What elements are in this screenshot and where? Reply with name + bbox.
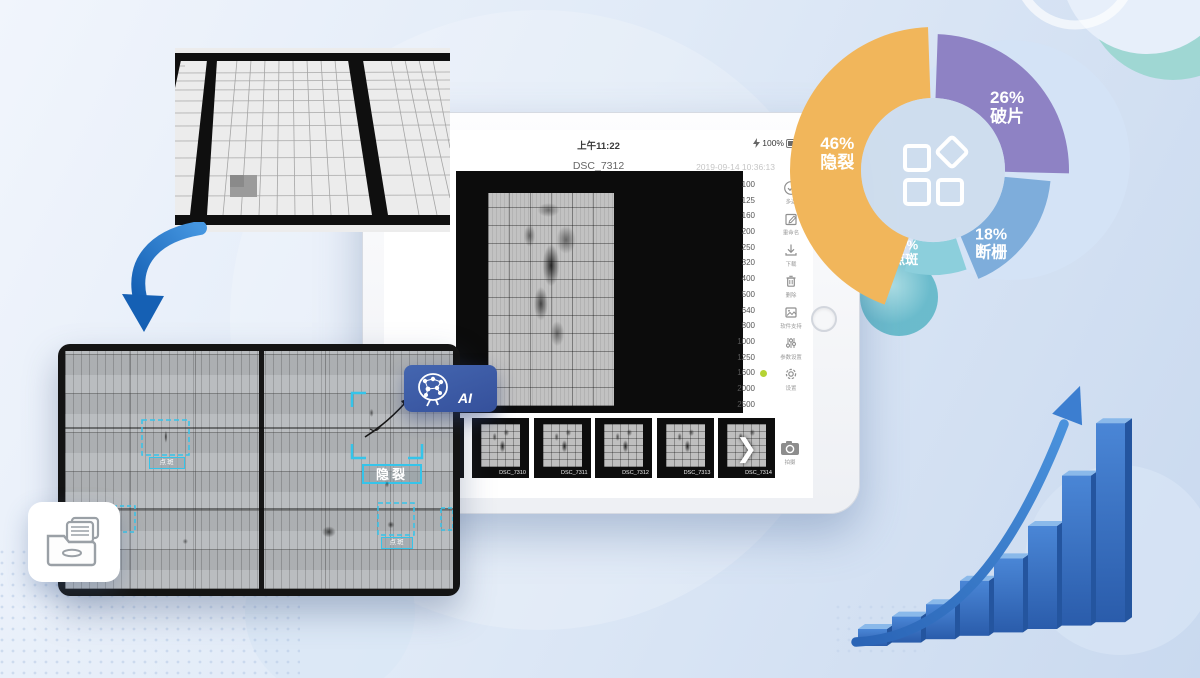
el-module-image: 隐裂 点斑 点斑	[65, 351, 453, 589]
thumbnail-dsc_7314[interactable]: DSC_7314❯	[718, 418, 775, 478]
pie-label-隐裂: 46%隐裂	[820, 134, 854, 172]
iso-value-640[interactable]: 640	[727, 303, 755, 319]
camera-button[interactable]: 拍摄	[772, 440, 808, 466]
growth-bar-6	[1028, 526, 1057, 629]
thumbnail-dsc_7311[interactable]: DSC_7311	[534, 418, 591, 478]
iso-value-125[interactable]: 125	[727, 193, 755, 209]
iso-value-800[interactable]: 800	[727, 318, 755, 334]
iso-value-500[interactable]: 500	[727, 287, 755, 303]
pie-label-断栅: 18%断栅	[975, 227, 1007, 262]
iso-scale: 1001251602002503204005006408001000125016…	[727, 177, 755, 412]
growth-arrow-head	[1052, 380, 1095, 425]
promo-canvas: 4G 上午11:22 100% DSC_7312 2019-09-14 10	[0, 0, 1200, 678]
thumbnail-dsc_7313[interactable]: DSC_7313	[657, 418, 714, 478]
more-thumbnails-chevron-icon[interactable]: ❯	[718, 418, 775, 478]
tool-parameter-settings[interactable]: 参数设置	[770, 335, 812, 366]
iso-value-320[interactable]: 320	[727, 255, 755, 271]
tool-settings[interactable]: 设置	[770, 366, 812, 397]
filmstrip: DSC_7310DSC_7311DSC_7312DSC_7313DSC_7314…	[472, 418, 775, 478]
iso-value-200[interactable]: 200	[727, 224, 755, 240]
growth-bar-7	[1062, 476, 1091, 626]
thumbnail-dsc_7310[interactable]: DSC_7310	[472, 418, 529, 478]
defect-overlays	[65, 351, 453, 589]
pie-label-破片: 26%破片	[990, 88, 1024, 126]
iso-value-400[interactable]: 400	[727, 271, 755, 287]
growth-bar-8	[1096, 423, 1125, 622]
thumbnail-dsc_7312[interactable]: DSC_7312	[595, 418, 652, 478]
iso-value-1600[interactable]: 1600	[727, 365, 755, 381]
folder-import-icon	[42, 514, 106, 570]
ai-badge-label: AI	[458, 390, 472, 406]
iso-value-100[interactable]: 100	[727, 177, 755, 193]
defect-label-spot-1: 点斑	[149, 457, 185, 469]
el-photo	[488, 193, 614, 406]
thumbnail-label: DSC_7311	[561, 470, 588, 476]
defect-pie-chart: 26%破片18%断栅10%点斑46%隐裂	[770, 8, 1110, 320]
solar-array-illustration	[175, 48, 450, 232]
defect-label-spot-2: 点斑	[381, 537, 413, 549]
thumbnail-label: DSC_7310	[499, 470, 526, 476]
gear-icon	[783, 366, 799, 382]
growth-bar-chart	[838, 375, 1150, 667]
iso-value-1250[interactable]: 1250	[727, 350, 755, 366]
ai-badge: AI	[404, 365, 497, 412]
iso-value-2000[interactable]: 2000	[727, 381, 755, 397]
donut-hole	[861, 98, 1005, 242]
gallery-folder-card[interactable]	[28, 502, 120, 582]
module-divider	[259, 351, 264, 589]
growth-bar-8	[1125, 418, 1132, 622]
iso-value-2500[interactable]: 2500	[727, 397, 755, 413]
camera-icon	[780, 440, 800, 456]
sliders-icon	[783, 335, 799, 351]
charging-bolt-icon	[753, 138, 760, 148]
aerial-solar-photo	[175, 48, 450, 232]
thumbnail-label: DSC_7313	[684, 470, 711, 476]
ai-brain-icon	[412, 370, 456, 408]
el-image-viewer[interactable]	[456, 171, 743, 413]
curved-down-arrow	[118, 222, 228, 337]
iso-value-1000[interactable]: 1000	[727, 334, 755, 350]
iso-selected-dot	[760, 370, 767, 377]
iso-value-250[interactable]: 250	[727, 240, 755, 256]
defect-label-crack: 隐裂	[362, 464, 422, 484]
growth-bar-5	[994, 558, 1023, 632]
iso-value-160[interactable]: 160	[727, 208, 755, 224]
thumbnail-label: DSC_7312	[622, 470, 649, 476]
